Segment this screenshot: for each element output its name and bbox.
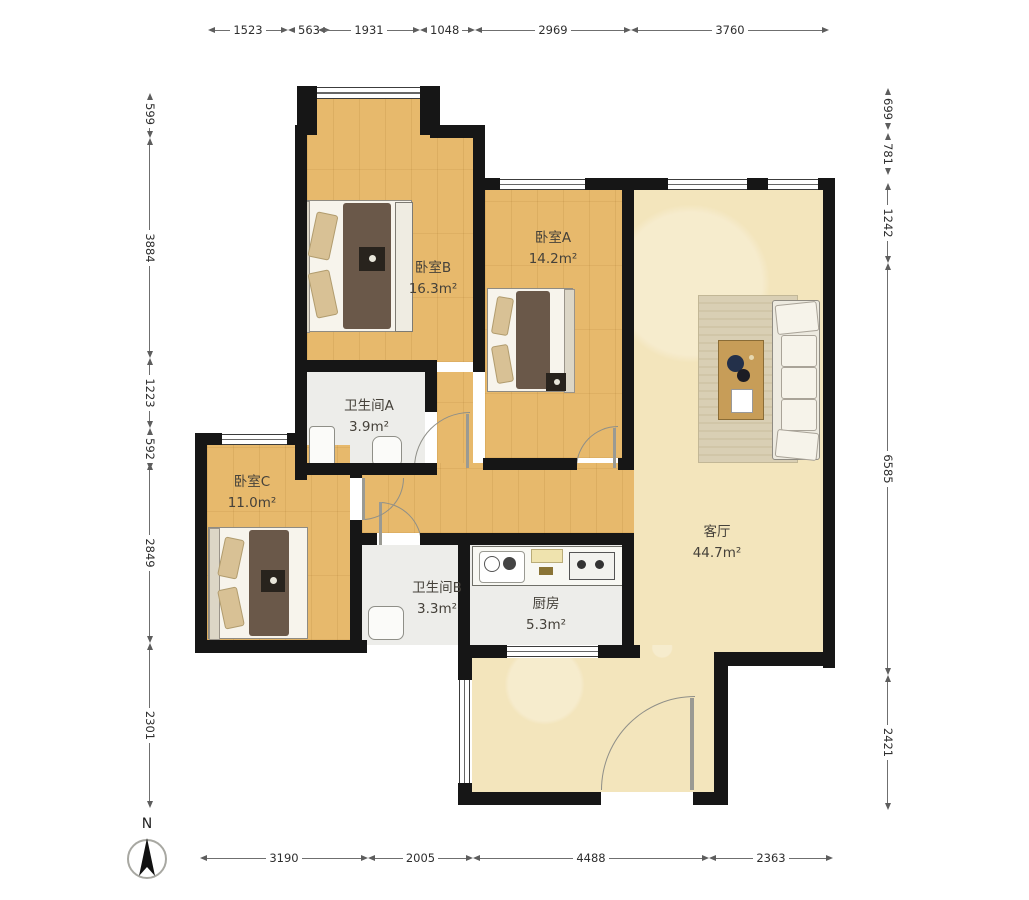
room-name: 卧室B [409,258,458,279]
window-bedroom-c [222,434,287,445]
room-name: 卫生间B [412,578,462,599]
door-leaf-bedroom-a [613,428,616,468]
room-area: 3.9m² [344,417,394,438]
dim-segment: 1048 [420,22,475,38]
dim-segment: 2005 [368,850,473,866]
room-label-kitchen: 厨房 5.3m² [526,594,566,636]
dim-segment: 2849 [142,463,158,643]
dim-segment: 2301 [142,643,158,808]
living-room-floor-2 [640,645,714,658]
dim-segment: 781 [880,133,896,183]
wall [295,125,307,480]
wall [287,433,307,445]
wall [425,372,437,412]
dim-segment: 563 [288,22,318,38]
room-name: 卧室A [529,228,578,249]
door-leaf-bedroom-c [362,478,365,520]
wall [195,640,367,653]
dim-segment: 1523 [208,22,288,38]
wall [195,433,222,445]
bed-bedroom-c [208,527,308,639]
window-kitchen [507,646,598,657]
wall [485,178,500,190]
dim-segment: 592 [142,428,158,463]
dimension-bottom: 3190 2005 4488 2363 [200,850,833,866]
dim-segment: 2969 [475,22,631,38]
room-area: 44.7m² [693,543,742,564]
wall [460,792,601,805]
sofa [772,300,820,460]
wall [473,125,485,372]
room-name: 客厅 [693,522,742,543]
room-label-bedroom-a: 卧室A 14.2m² [529,228,578,270]
wall [195,433,207,653]
dim-segment: 4488 [473,850,709,866]
dim-segment: 2421 [880,675,896,810]
kitchen-counter [472,546,624,586]
window-living-2 [768,179,818,190]
toilet-bathroom-b [368,606,404,640]
bedroom-b-bay-floor [307,98,420,138]
wall [693,792,728,805]
north-label: N [124,816,170,832]
room-label-bedroom-b: 卧室B 16.3m² [409,258,458,300]
dimension-top: 1523 563 1931 1048 2969 3760 [208,22,829,38]
dim-segment: 1223 [142,358,158,428]
wall [458,783,472,805]
wall [622,545,634,658]
door-leaf-entrance [690,698,694,790]
bed-bedroom-a [487,288,573,392]
wall [350,463,362,478]
wall [714,652,728,805]
wall [622,178,634,470]
room-name: 卧室C [228,472,277,493]
window-living-1 [668,179,747,190]
room-area: 5.3m² [526,615,566,636]
room-area: 3.3m² [412,599,462,620]
room-label-bathroom-b: 卫生间B 3.3m² [412,578,462,620]
room-area: 11.0m² [228,493,277,514]
dim-segment: 1931 [318,22,420,38]
dimension-right: 699 781 1242 6585 2421 [880,88,896,810]
room-label-bathroom-a: 卫生间A 3.9m² [344,396,394,438]
room-label-living-room: 客厅 44.7m² [693,522,742,564]
wall [420,533,634,545]
wall [728,652,835,666]
room-name: 厨房 [526,594,566,615]
wall [483,458,577,470]
wall [295,463,437,475]
dim-segment: 3884 [142,138,158,358]
washbasin-bathroom-a [309,426,335,468]
dim-segment: 699 [880,88,896,133]
room-name: 卫生间A [344,396,394,417]
dim-segment: 599 [142,93,158,138]
room-area: 16.3m² [409,279,458,300]
wall [350,520,362,653]
room-label-bedroom-c: 卧室C 11.0m² [228,472,277,514]
wall [747,178,768,190]
north-compass-icon [124,832,170,884]
room-area: 14.2m² [529,249,578,270]
window-bay-bedroom-b [317,87,420,99]
coffee-table [718,340,764,420]
dim-segment: 1242 [880,183,896,263]
window-bedroom-a [500,179,585,190]
dimension-left: 599 3884 1223 592 2849 2301 [142,93,158,808]
kitchen-stove [569,552,615,580]
wall [823,178,835,668]
wall [477,360,485,372]
dim-segment: 2363 [709,850,833,866]
dim-segment: 3190 [200,850,368,866]
window-dining [459,680,470,783]
wall [295,360,437,372]
dim-segment: 6585 [880,263,896,675]
door-leaf-bathroom-a [466,414,469,468]
dim-segment: 3760 [631,22,829,38]
